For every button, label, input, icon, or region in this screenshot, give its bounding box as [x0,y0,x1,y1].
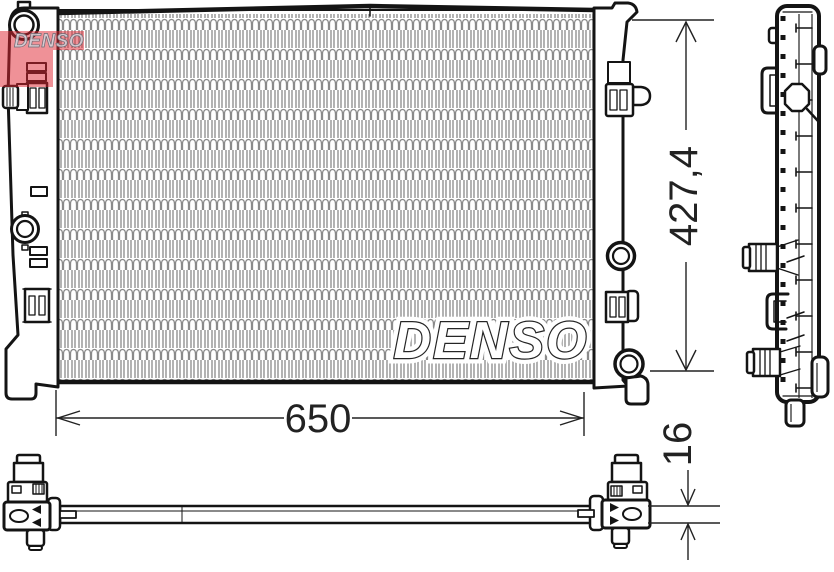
bottom-left-fitting [4,455,76,550]
logo-block [0,50,53,87]
logo-text: DENSO [14,31,84,52]
dimension-height-label: 427,4 [662,146,706,246]
side-view [743,6,828,426]
dimension-thickness: 16 [648,422,720,560]
side-top-clip [814,46,826,74]
radiator-technical-drawing: DENSO DENSO DENSO [0,0,834,572]
drawing-canvas: DENSO DENSO DENSO [0,0,834,572]
bottom-view [4,455,650,550]
mounting-boss-upper [608,243,635,270]
front-view: DENSO DENSO DENSO [0,2,650,404]
right-foot [626,376,648,404]
side-foot [812,357,828,397]
right-upper-connector [606,62,650,116]
mounting-boss-lower [615,350,643,378]
dimension-width: 650 [56,390,584,441]
dimension-thickness-label: 16 [656,422,700,467]
side-bottom-stub [786,400,804,426]
right-tank [594,3,650,404]
core-watermark-text: DENSO [394,312,589,370]
left-lower-clip [23,289,51,322]
denso-core-watermark: DENSO DENSO [394,312,589,370]
dimension-height: 427,4 [632,20,714,371]
right-mid-connector [606,291,638,322]
dimension-width-label: 650 [285,397,352,441]
left-connector [3,84,28,110]
bottom-right-fitting [578,455,650,548]
